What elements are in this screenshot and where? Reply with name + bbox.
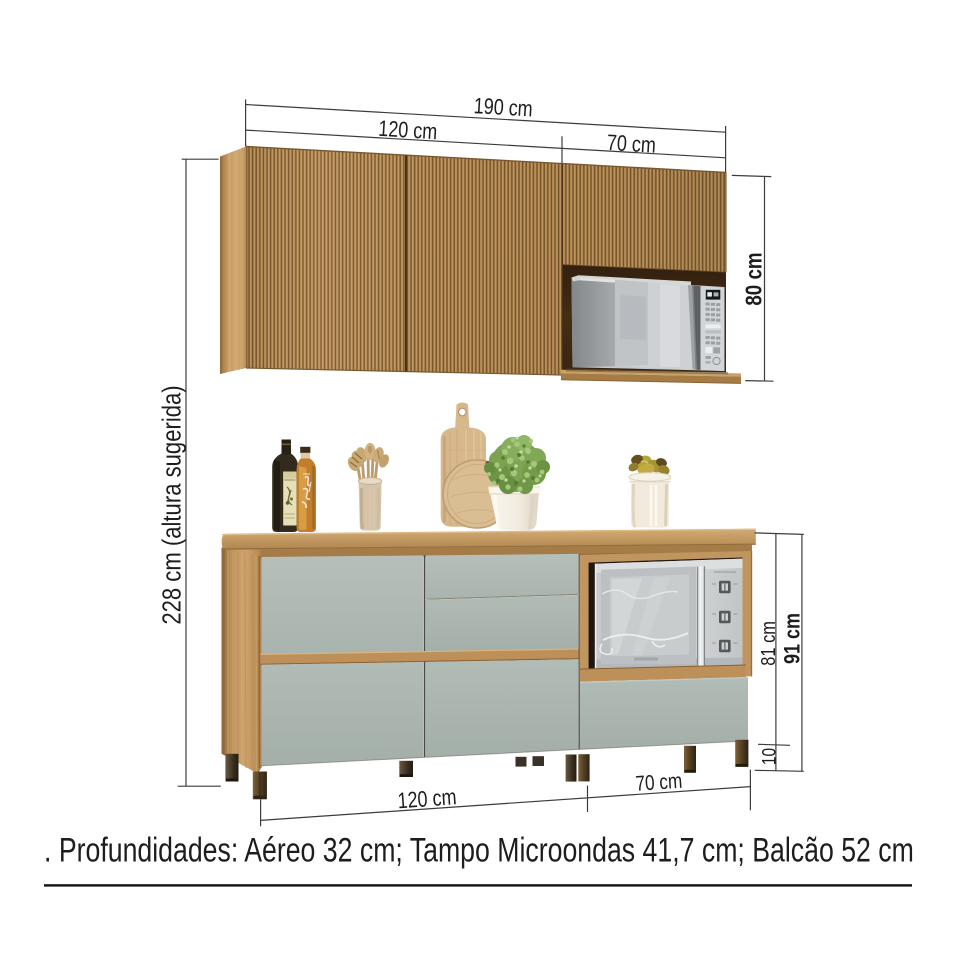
svg-text:120 cm: 120 cm (397, 786, 458, 814)
svg-text:80 cm: 80 cm (740, 252, 767, 305)
svg-text:70 cm: 70 cm (635, 769, 683, 796)
svg-text:10: 10 (758, 748, 780, 766)
svg-text:91 cm: 91 cm (781, 613, 805, 664)
svg-text:. Profundidades: Aéreo 32 cm;: . Profundidades: Aéreo 32 cm; Tampo Micr… (44, 831, 914, 869)
svg-text:190 cm: 190 cm (473, 94, 533, 122)
svg-text:228 cm (altura sugerida): 228 cm (altura sugerida) (158, 385, 187, 624)
svg-text:81 cm: 81 cm (756, 621, 779, 666)
svg-text:70 cm: 70 cm (606, 131, 656, 158)
svg-text:120 cm: 120 cm (378, 117, 438, 145)
